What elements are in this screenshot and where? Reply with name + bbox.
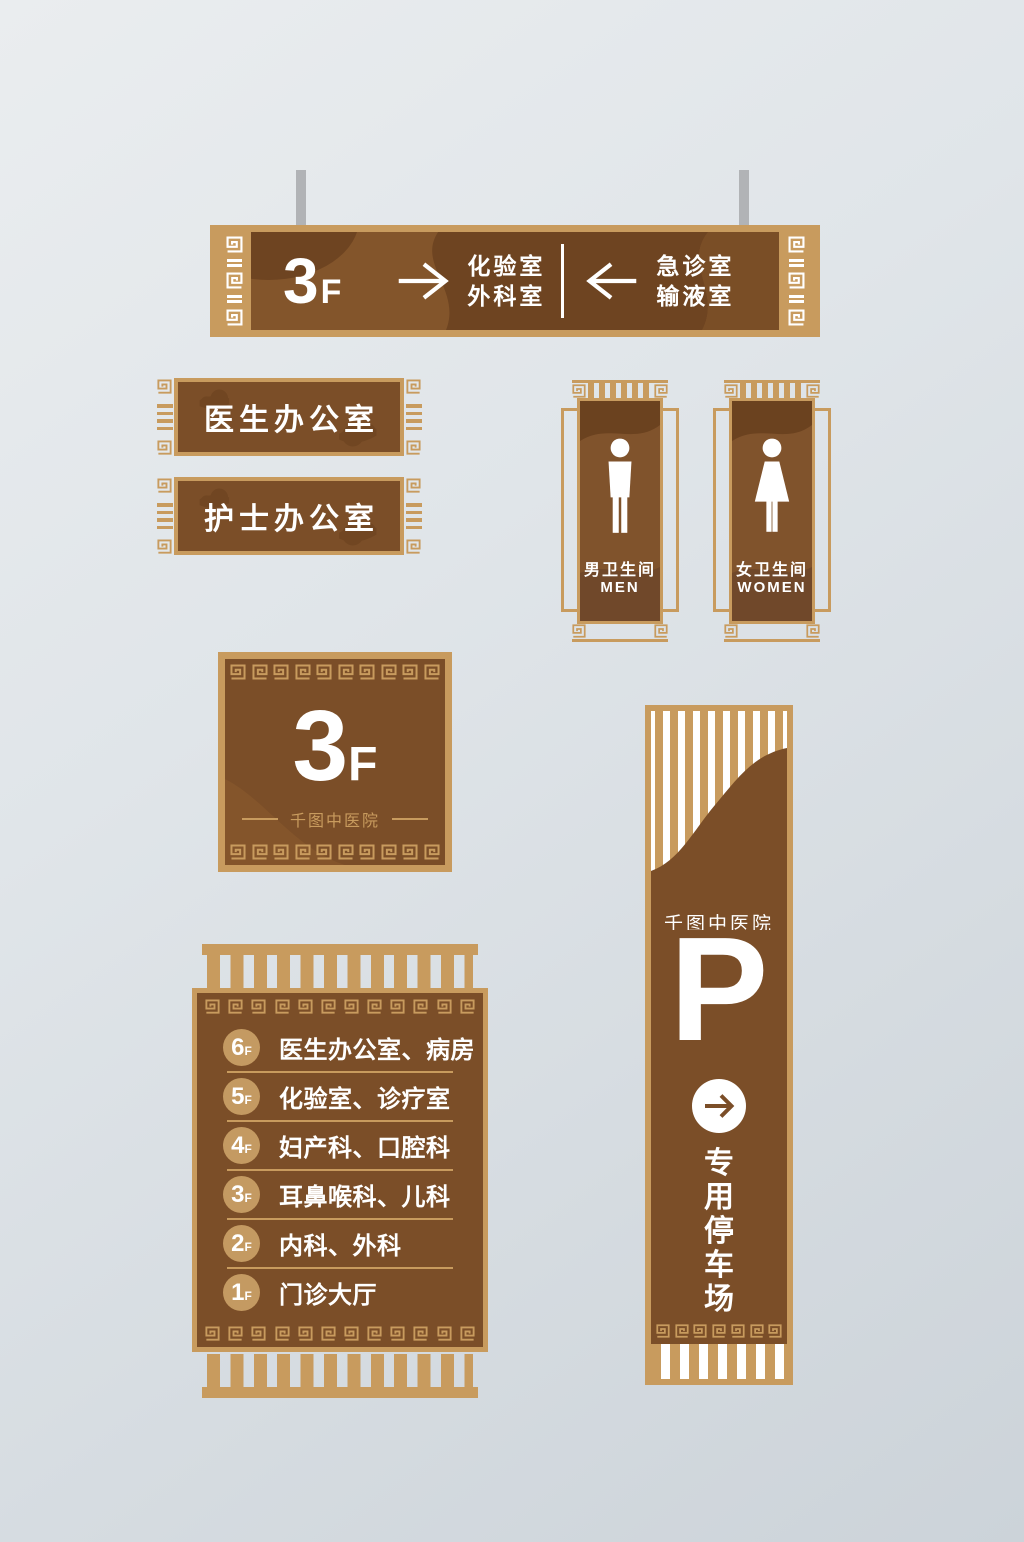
- directory-row: 2F内科、外科: [197, 1225, 483, 1262]
- meander-spiral-icon: [390, 999, 405, 1014]
- floor-departments: 内科、外科: [279, 1226, 402, 1261]
- floor-departments: 门诊大厅: [279, 1275, 377, 1310]
- right-meander-band: [779, 232, 813, 330]
- meander-spiral-icon: [275, 1326, 290, 1341]
- meander-spiral-icon: [367, 999, 382, 1014]
- destinations-left: 急诊室 输液室: [656, 251, 734, 311]
- meander-spiral-icon: [157, 440, 172, 455]
- meander-spiral-icon: [230, 844, 246, 860]
- meander-spiral-icon: [226, 236, 243, 253]
- row-divider: [227, 1267, 453, 1269]
- parking-label-char: 场: [704, 1283, 734, 1317]
- plate-panel: 医生办公室: [178, 382, 400, 452]
- meander-spiral-icon: [316, 844, 332, 860]
- hospital-name-line: 千图中医院: [225, 807, 445, 831]
- directory-row: 3F耳鼻喉科、儿科: [197, 1176, 483, 1213]
- meander-spiral-icon: [693, 1324, 707, 1338]
- directory-row: 5F化验室、诊疗室: [197, 1078, 483, 1115]
- meander-spiral-icon: [381, 844, 397, 860]
- meander-spiral-icon: [390, 1326, 405, 1341]
- parking-label-vertical: 专用停车场: [704, 1147, 734, 1317]
- restroom-panel: 男卫生间 MEN: [577, 398, 663, 624]
- door-plate-label: 医生办公室: [204, 395, 379, 439]
- meander-spiral-icon: [424, 664, 440, 680]
- meander-spiral-icon: [367, 1326, 382, 1341]
- floor-number: 3: [231, 1176, 244, 1213]
- meander-spiral-icon: [205, 1326, 220, 1341]
- parking-symbol: P: [670, 932, 769, 1047]
- meander-spiral-icon: [157, 379, 172, 394]
- meander-spiral-icon: [273, 664, 289, 680]
- row-divider: [227, 1071, 453, 1073]
- floor-departments: 耳鼻喉科、儿科: [279, 1177, 451, 1212]
- meander-spiral-icon: [406, 478, 421, 493]
- floor-badge: 3F: [223, 1176, 260, 1213]
- meander-spiral-icon: [675, 1324, 689, 1338]
- directory-rows: 6F医生办公室、病房5F化验室、诊疗室4F妇产科、口腔科3F耳鼻喉科、儿科2F内…: [197, 1020, 483, 1320]
- meander-spiral-icon: [724, 624, 738, 638]
- bottom-meander-row: [197, 1320, 483, 1347]
- hanging-rod-right: [739, 170, 749, 230]
- bottom-meander-row: [651, 1318, 787, 1344]
- meander-spiral-icon: [656, 1324, 670, 1338]
- meander-spiral-icon: [413, 1326, 428, 1341]
- meander-spiral-icon: [251, 999, 266, 1014]
- row-divider: [227, 1218, 453, 1220]
- directory-row: 6F医生办公室、病房: [197, 1029, 483, 1066]
- floor-suffix: F: [245, 1082, 252, 1119]
- restroom-panel: 女卫生间 WOMEN: [729, 398, 815, 624]
- directory-row: 4F妇产科、口腔科: [197, 1127, 483, 1164]
- meander-spiral-icon: [157, 539, 172, 554]
- meander-spiral-icon: [338, 664, 354, 680]
- meander-spiral-icon: [228, 999, 243, 1014]
- parking-label-char: 车: [704, 1249, 734, 1283]
- destination: 输液室: [656, 281, 734, 311]
- meander-spiral-icon: [273, 844, 289, 860]
- meander-spiral-icon: [275, 999, 290, 1014]
- destinations-right: 化验室 外科室: [467, 251, 545, 311]
- floor-departments: 化验室、诊疗室: [279, 1079, 451, 1114]
- right-wing-ornament: [404, 378, 423, 456]
- meander-spiral-icon: [437, 1326, 452, 1341]
- row-divider: [227, 1120, 453, 1122]
- floor-number: 3: [283, 249, 319, 313]
- meander-spiral-icon: [321, 999, 336, 1014]
- meander-spiral-icon: [654, 624, 668, 638]
- hanging-rod-left: [296, 170, 306, 230]
- floor-indicator: 3 F: [283, 249, 341, 313]
- meander-spiral-icon: [321, 1326, 336, 1341]
- hospital-name: 千图中医院: [651, 909, 787, 930]
- floor-number-sign: 3 F 千图中医院: [218, 652, 452, 872]
- meander-spiral-icon: [572, 384, 586, 398]
- bottom-comb-ornament: [572, 619, 668, 642]
- floor-badge: 4F: [223, 1127, 260, 1164]
- floor-suffix: F: [321, 275, 342, 309]
- meander-spiral-icon: [252, 664, 268, 680]
- restroom-sign-women: 女卫生间 WOMEN: [713, 380, 831, 642]
- meander-spiral-icon: [406, 539, 421, 554]
- divider: [561, 244, 564, 318]
- hospital-name: 千图中医院: [290, 807, 380, 831]
- restroom-label-en: MEN: [580, 579, 660, 596]
- directional-hanging-sign: 3 F 化验室 外科室 急诊室 输液室: [210, 225, 820, 337]
- floor-departments: 妇产科、口腔科: [279, 1128, 451, 1163]
- floor-number: 2: [231, 1225, 244, 1262]
- directional-sign-panel: 3 F 化验室 外科室 急诊室 输液室: [251, 232, 779, 330]
- meander-spiral-icon: [298, 999, 313, 1014]
- floor-suffix: F: [245, 1229, 252, 1266]
- bottom-teeth-ornament: [207, 1354, 473, 1388]
- left-meander-band: [217, 232, 251, 330]
- meander-spiral-icon: [712, 1324, 726, 1338]
- meander-spiral-icon: [381, 664, 397, 680]
- top-teeth-ornament: [207, 954, 473, 988]
- meander-spiral-icon: [788, 236, 805, 253]
- floor-badge: 5F: [223, 1078, 260, 1115]
- restroom-label-zh: 女卫生间: [732, 556, 812, 580]
- meander-spiral-icon: [157, 478, 172, 493]
- meander-spiral-icon: [338, 844, 354, 860]
- bottom-meander-row: [225, 839, 445, 865]
- meander-spiral-icon: [788, 272, 805, 289]
- door-plate-label: 护士办公室: [204, 494, 379, 538]
- signage-mockup-canvas: 3 F 化验室 外科室 急诊室 输液室: [0, 0, 1024, 1542]
- striped-header: 千图中医院: [651, 711, 787, 930]
- meander-spiral-icon: [806, 624, 820, 638]
- floor-number: 3: [293, 696, 349, 796]
- right-wing-ornament: [404, 477, 423, 555]
- meander-spiral-icon: [768, 1324, 782, 1338]
- bottom-bar: [202, 1387, 478, 1398]
- meander-spiral-icon: [724, 384, 738, 398]
- floor-number: 6: [231, 1029, 244, 1066]
- left-wing-ornament: [155, 477, 174, 555]
- destination: 急诊室: [656, 251, 734, 281]
- floor-badge: 1F: [223, 1274, 260, 1311]
- meander-spiral-icon: [344, 999, 359, 1014]
- meander-spiral-icon: [226, 272, 243, 289]
- meander-spiral-icon: [295, 664, 311, 680]
- arrow-right-icon: [395, 260, 451, 302]
- male-figure-icon: [599, 437, 641, 537]
- meander-spiral-icon: [806, 384, 820, 398]
- meander-spiral-icon: [460, 1326, 475, 1341]
- floor-directory-sign: 6F医生办公室、病房5F化验室、诊疗室4F妇产科、口腔科3F耳鼻喉科、儿科2F内…: [192, 944, 488, 1398]
- floor-badge: 2F: [223, 1225, 260, 1262]
- floor-suffix: F: [348, 741, 377, 789]
- meander-spiral-icon: [359, 844, 375, 860]
- meander-spiral-icon: [572, 624, 586, 638]
- floor-departments: 医生办公室、病房: [279, 1030, 475, 1065]
- meander-spiral-icon: [413, 999, 428, 1014]
- meander-spiral-icon: [406, 440, 421, 455]
- plate-frame: 护士办公室: [174, 477, 404, 555]
- restroom-label-zh: 男卫生间: [580, 556, 660, 580]
- restroom-label-en: WOMEN: [732, 579, 812, 596]
- circle-arrow-right-icon: [692, 1079, 746, 1133]
- restroom-sign-men: 男卫生间 MEN: [561, 380, 679, 642]
- parking-label-char: 用: [704, 1181, 734, 1215]
- plate-frame: 医生办公室: [174, 378, 404, 456]
- left-wing-ornament: [155, 378, 174, 456]
- meander-spiral-icon: [437, 999, 452, 1014]
- meander-spiral-icon: [298, 1326, 313, 1341]
- meander-spiral-icon: [654, 384, 668, 398]
- meander-spiral-icon: [402, 664, 418, 680]
- row-divider: [227, 1169, 453, 1171]
- meander-spiral-icon: [228, 1326, 243, 1341]
- meander-spiral-icon: [731, 1324, 745, 1338]
- plate-panel: 护士办公室: [178, 481, 400, 551]
- meander-spiral-icon: [788, 309, 805, 326]
- bottom-comb-ornament: [724, 619, 820, 642]
- floor-number: 4: [231, 1127, 244, 1164]
- meander-spiral-icon: [460, 999, 475, 1014]
- directory-panel: 6F医生办公室、病房5F化验室、诊疗室4F妇产科、口腔科3F耳鼻喉科、儿科2F内…: [192, 988, 488, 1352]
- meander-spiral-icon: [230, 664, 246, 680]
- bottom-teeth-ornament: [651, 1344, 787, 1379]
- arrow-left-icon: [584, 260, 640, 302]
- meander-spiral-icon: [424, 844, 440, 860]
- door-plate-nurse-office: 护士办公室: [155, 477, 423, 555]
- meander-spiral-icon: [750, 1324, 764, 1338]
- stripe-wave-decoration: [651, 711, 787, 930]
- floor-number: 5: [231, 1078, 244, 1115]
- meander-spiral-icon: [251, 1326, 266, 1341]
- meander-spiral-icon: [226, 309, 243, 326]
- female-figure-icon: [749, 437, 795, 537]
- parking-sign: 千图中医院 P 专用停车场: [645, 705, 793, 1385]
- dash: [242, 818, 278, 820]
- top-meander-row: [225, 659, 445, 685]
- meander-spiral-icon: [406, 379, 421, 394]
- top-meander-row: [197, 993, 483, 1020]
- parking-label-char: 专: [704, 1147, 734, 1181]
- meander-spiral-icon: [316, 664, 332, 680]
- destination: 化验室: [467, 251, 545, 281]
- floor-indicator: 3 F: [225, 685, 445, 807]
- meander-spiral-icon: [295, 844, 311, 860]
- floor-suffix: F: [245, 1033, 252, 1070]
- parking-label-char: 停: [704, 1215, 734, 1249]
- destination: 外科室: [467, 281, 545, 311]
- meander-spiral-icon: [402, 844, 418, 860]
- floor-number: 1: [231, 1274, 244, 1311]
- dash: [392, 818, 428, 820]
- meander-spiral-icon: [344, 1326, 359, 1341]
- floor-suffix: F: [245, 1278, 252, 1315]
- directory-row: 1F门诊大厅: [197, 1274, 483, 1311]
- meander-spiral-icon: [205, 999, 220, 1014]
- meander-spiral-icon: [359, 664, 375, 680]
- floor-badge: 6F: [223, 1029, 260, 1066]
- floor-suffix: F: [245, 1131, 252, 1168]
- door-plate-doctor-office: 医生办公室: [155, 378, 423, 456]
- floor-suffix: F: [245, 1180, 252, 1217]
- parking-panel: P 专用停车场: [651, 930, 787, 1344]
- directional-sign-content: 3 F 化验室 外科室 急诊室 输液室: [251, 232, 779, 330]
- meander-spiral-icon: [252, 844, 268, 860]
